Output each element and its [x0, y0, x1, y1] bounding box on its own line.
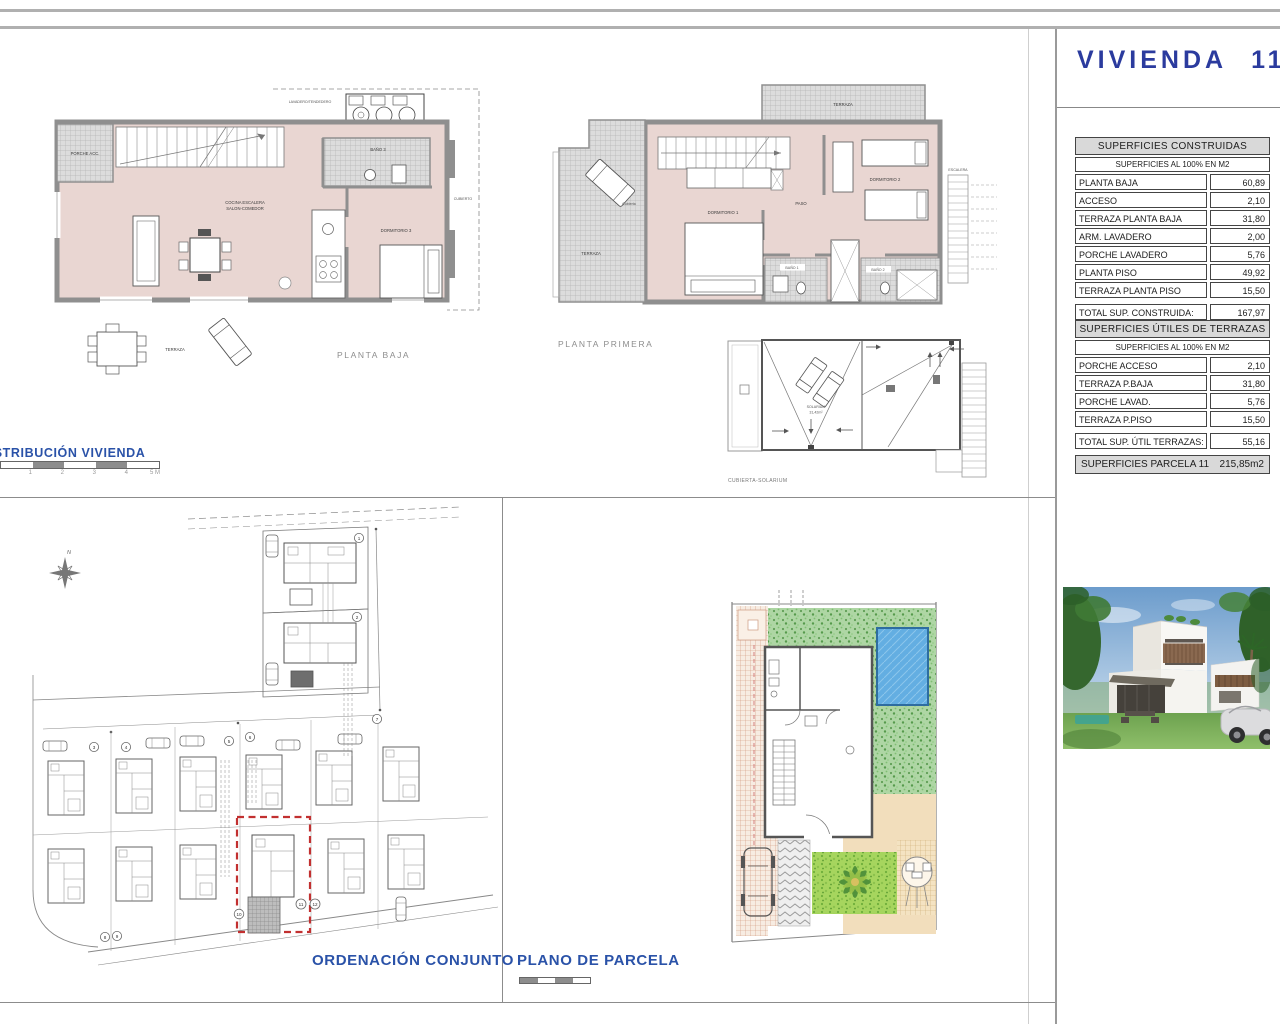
table-subheader: SUPERFICIES AL 100% EN M2	[1075, 340, 1270, 355]
side-terrace: Cubierta TERRAZA	[553, 120, 645, 302]
entry-porch-tile	[738, 610, 766, 640]
svg-text:TERRAZA: TERRAZA	[833, 102, 853, 107]
plot-number-6: 6	[245, 732, 254, 741]
table-row: PORCHE ACCESO2,10	[1075, 357, 1270, 373]
bed-dormitorio-1	[685, 223, 763, 295]
sheet-title: VIVIENDA 11	[1077, 46, 1280, 75]
room-label-terraza: TERRAZA	[581, 251, 601, 256]
table-header: SUPERFICIES ÚTILES DE TERRAZAS	[1075, 320, 1270, 338]
swimming-pool	[877, 628, 928, 705]
room-label-cubierta: Cubierta	[622, 202, 636, 206]
plan-caption-planta-baja: PLANTA BAJA	[337, 350, 410, 360]
svg-text:7: 7	[376, 717, 379, 722]
room-label-terraza: TERRAZA	[165, 347, 185, 352]
table-subheader: SUPERFICIES AL 100% EN M2	[1075, 157, 1270, 172]
room-label-paso: PASO	[795, 201, 807, 206]
bed-dormitorio-3	[380, 245, 442, 298]
scale-bar-ticks: 12345 M	[0, 470, 160, 476]
title-ordenacion-conjunto: ORDENACIÓN CONJUNTO	[312, 952, 514, 969]
scale-bar-segments	[0, 461, 160, 469]
solarium-area-label: 31,42m²	[809, 411, 823, 415]
upper-plots	[263, 527, 368, 697]
sheet-margin-line	[1028, 29, 1029, 1024]
room-label-cubierto: CUBIERTO	[454, 197, 473, 201]
horizontal-divider	[0, 497, 1055, 498]
stairs	[658, 137, 790, 169]
svg-text:5: 5	[228, 739, 231, 744]
parcela-value: 215,85m2	[1220, 459, 1264, 470]
roof-plan-cubierta-solarium: SOLARIUM 31,42m² CUBIERTA-SOLARIUM	[720, 335, 1055, 490]
table-row: TERRAZA P.BAJA31,80	[1075, 375, 1270, 391]
wall-stub	[447, 140, 455, 178]
sun-lounger	[208, 318, 252, 367]
room-label-dormitorio-2: DORMITORIO 2	[870, 177, 901, 182]
upper-terrace: TERRAZA	[762, 85, 925, 122]
table-row: PORCHE LAVAD.5,76	[1075, 393, 1270, 409]
table-row: TERRAZA P.PISO15,50	[1075, 411, 1270, 427]
table-superficies-terrazas: SUPERFICIES ÚTILES DE TERRAZAS SUPERFICI…	[1075, 320, 1270, 449]
palm-tree	[839, 866, 871, 898]
parcela-summary: SUPERFICIES PARCELA 11 215,85m2	[1075, 455, 1270, 474]
title-plano-de-parcela: PLANO DE PARCELA	[517, 952, 680, 969]
plot-number-11: 11	[296, 899, 306, 909]
room-label-escalera: ESCALERA	[948, 168, 968, 172]
table-row: TERRAZA PLANTA BAJA31,80	[1075, 210, 1270, 226]
table-total-row: TOTAL SUP. CONSTRUIDA:167,97	[1075, 304, 1270, 320]
table-row: TERRAZA PLANTA PISO15,50	[1075, 282, 1270, 298]
table-row: PLANTA PISO49,92	[1075, 264, 1270, 280]
driveway	[778, 840, 810, 926]
title-distribucion-vivienda: DISTRIBUCIÓN VIVIENDA	[0, 446, 145, 460]
site-plan-ordenacion: N	[28, 505, 505, 1005]
room-label-dormitorio-3: DORMITORIO 3	[381, 228, 412, 233]
sheet-top-border-outer	[0, 9, 1280, 12]
svg-text:11: 11	[299, 902, 304, 907]
house-stairs	[773, 740, 795, 805]
title-block-divider	[1055, 29, 1057, 1024]
kitchen-counter	[312, 210, 345, 298]
plot-number-12: 12	[310, 899, 320, 909]
title-underline	[1057, 107, 1280, 108]
room-label-dormitorio-1: DORMITORIO 1	[708, 210, 739, 215]
stairs	[116, 127, 284, 167]
plot-number-9: 9	[112, 931, 121, 940]
room-label-salon: SALON-COMEDOR	[226, 206, 263, 211]
house-footprint	[765, 647, 872, 840]
sheet-top-border-inner	[0, 26, 1280, 29]
solarium-label: SOLARIUM	[807, 405, 826, 409]
svg-text:9: 9	[116, 934, 119, 939]
table-total-row: TOTAL SUP. ÚTIL TERRAZAS:55,16	[1075, 433, 1270, 449]
table-row: PLANTA BAJA60,89	[1075, 174, 1270, 190]
room-label-cocina: COCINA ESCALERA	[225, 200, 265, 205]
svg-text:10: 10	[236, 912, 242, 917]
plot-number-1: 1	[354, 533, 363, 542]
svg-text:BAÑO 3: BAÑO 3	[370, 147, 386, 152]
scale-bar-distribucion: 12345 M	[0, 461, 160, 476]
plot-number-7: 7	[372, 714, 381, 723]
svg-text:12: 12	[312, 902, 318, 907]
plot-number-8: 8	[100, 932, 109, 941]
table-row: PORCHE LAVADERO5,76	[1075, 246, 1270, 262]
parcela-label: SUPERFICIES PARCELA 11	[1081, 459, 1209, 470]
plan-caption-planta-primera: PLANTA PRIMERA	[558, 339, 653, 349]
pool-edge	[1075, 715, 1109, 724]
svg-text:BAÑO 2: BAÑO 2	[871, 267, 884, 272]
floor-drain	[279, 277, 291, 289]
wardrobe	[687, 168, 771, 188]
svg-text:2: 2	[356, 615, 359, 620]
svg-text:BAÑO 1: BAÑO 1	[785, 265, 798, 270]
architect-drawing-sheet: LAVADERO/TENDEDERO PORCHE ACC.	[0, 0, 1280, 1024]
svg-text:PORCHE ACC.: PORCHE ACC.	[71, 151, 100, 156]
wall-stub	[447, 230, 455, 278]
plot-number-2: 2	[352, 612, 361, 621]
terrace-furniture	[88, 324, 146, 374]
sofa	[133, 216, 159, 286]
compass-icon: N	[49, 550, 81, 589]
floor-plan-planta-baja: LAVADERO/TENDEDERO PORCHE ACC.	[40, 80, 480, 380]
table-row: ARM. LAVADERO2,00	[1075, 228, 1270, 244]
exterior-stairs	[948, 175, 997, 283]
parcel-plan	[700, 590, 960, 950]
plot-number-4: 4	[121, 742, 130, 751]
floor-plan-planta-primera: TERRAZA Cubierta TERRAZA	[545, 80, 1000, 360]
svg-text:1: 1	[358, 536, 361, 541]
table-header: SUPERFICIES CONSTRUIDAS	[1075, 137, 1270, 155]
svg-text:8: 8	[104, 935, 107, 940]
svg-text:4: 4	[125, 745, 128, 750]
neighbor-villa	[1211, 659, 1259, 711]
plot-number-3: 3	[89, 742, 98, 751]
scale-bar-segments	[519, 977, 591, 984]
plot-number-10: 10	[234, 909, 244, 919]
svg-text:6: 6	[249, 735, 252, 740]
plot-number-5: 5	[224, 736, 233, 745]
house-plot-1	[284, 543, 356, 583]
scale-bar-parcela	[519, 977, 591, 984]
bano-3: BAÑO 3	[323, 138, 430, 187]
svg-text:N: N	[67, 550, 71, 556]
table-superficies-construidas: SUPERFICIES CONSTRUIDAS SUPERFICIES AL 1…	[1075, 137, 1270, 320]
plan-caption-cubierta: CUBIERTA-SOLARIUM	[728, 478, 787, 484]
room-label-lavadero: LAVADERO/TENDEDERO	[289, 100, 332, 104]
villa-render-photo	[1063, 587, 1270, 749]
house-plot-2	[284, 623, 356, 663]
svg-text:3: 3	[93, 745, 96, 750]
porche-acceso: PORCHE ACC.	[57, 124, 113, 182]
house-plot-11	[248, 835, 294, 933]
table-row: ACCESO2,10	[1075, 192, 1270, 208]
